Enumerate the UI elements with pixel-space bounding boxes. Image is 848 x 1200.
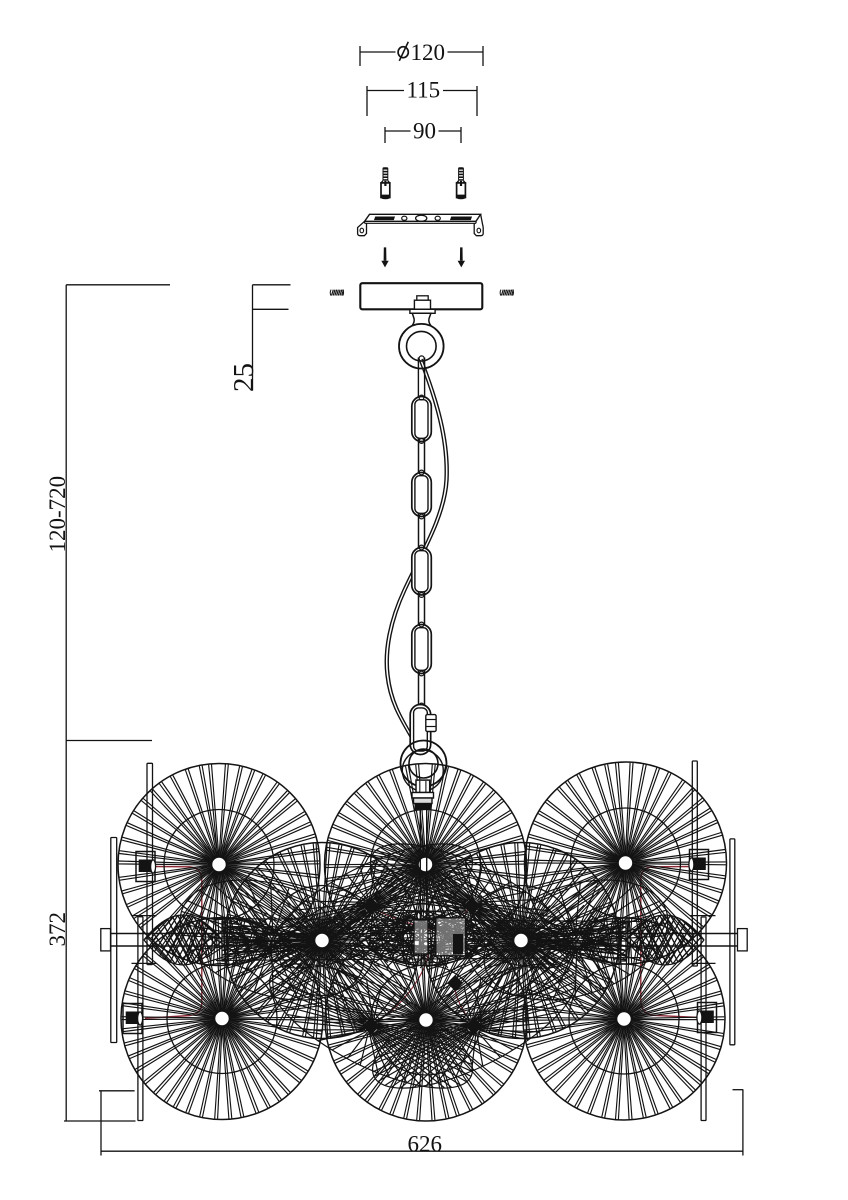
svg-text:120: 120 <box>411 40 446 65</box>
svg-text:120-720: 120-720 <box>45 476 70 553</box>
svg-text:25: 25 <box>228 363 260 392</box>
svg-text:372: 372 <box>45 912 70 947</box>
svg-text:90: 90 <box>413 119 436 144</box>
svg-text:626: 626 <box>408 1132 443 1157</box>
svg-text:115: 115 <box>407 78 441 103</box>
